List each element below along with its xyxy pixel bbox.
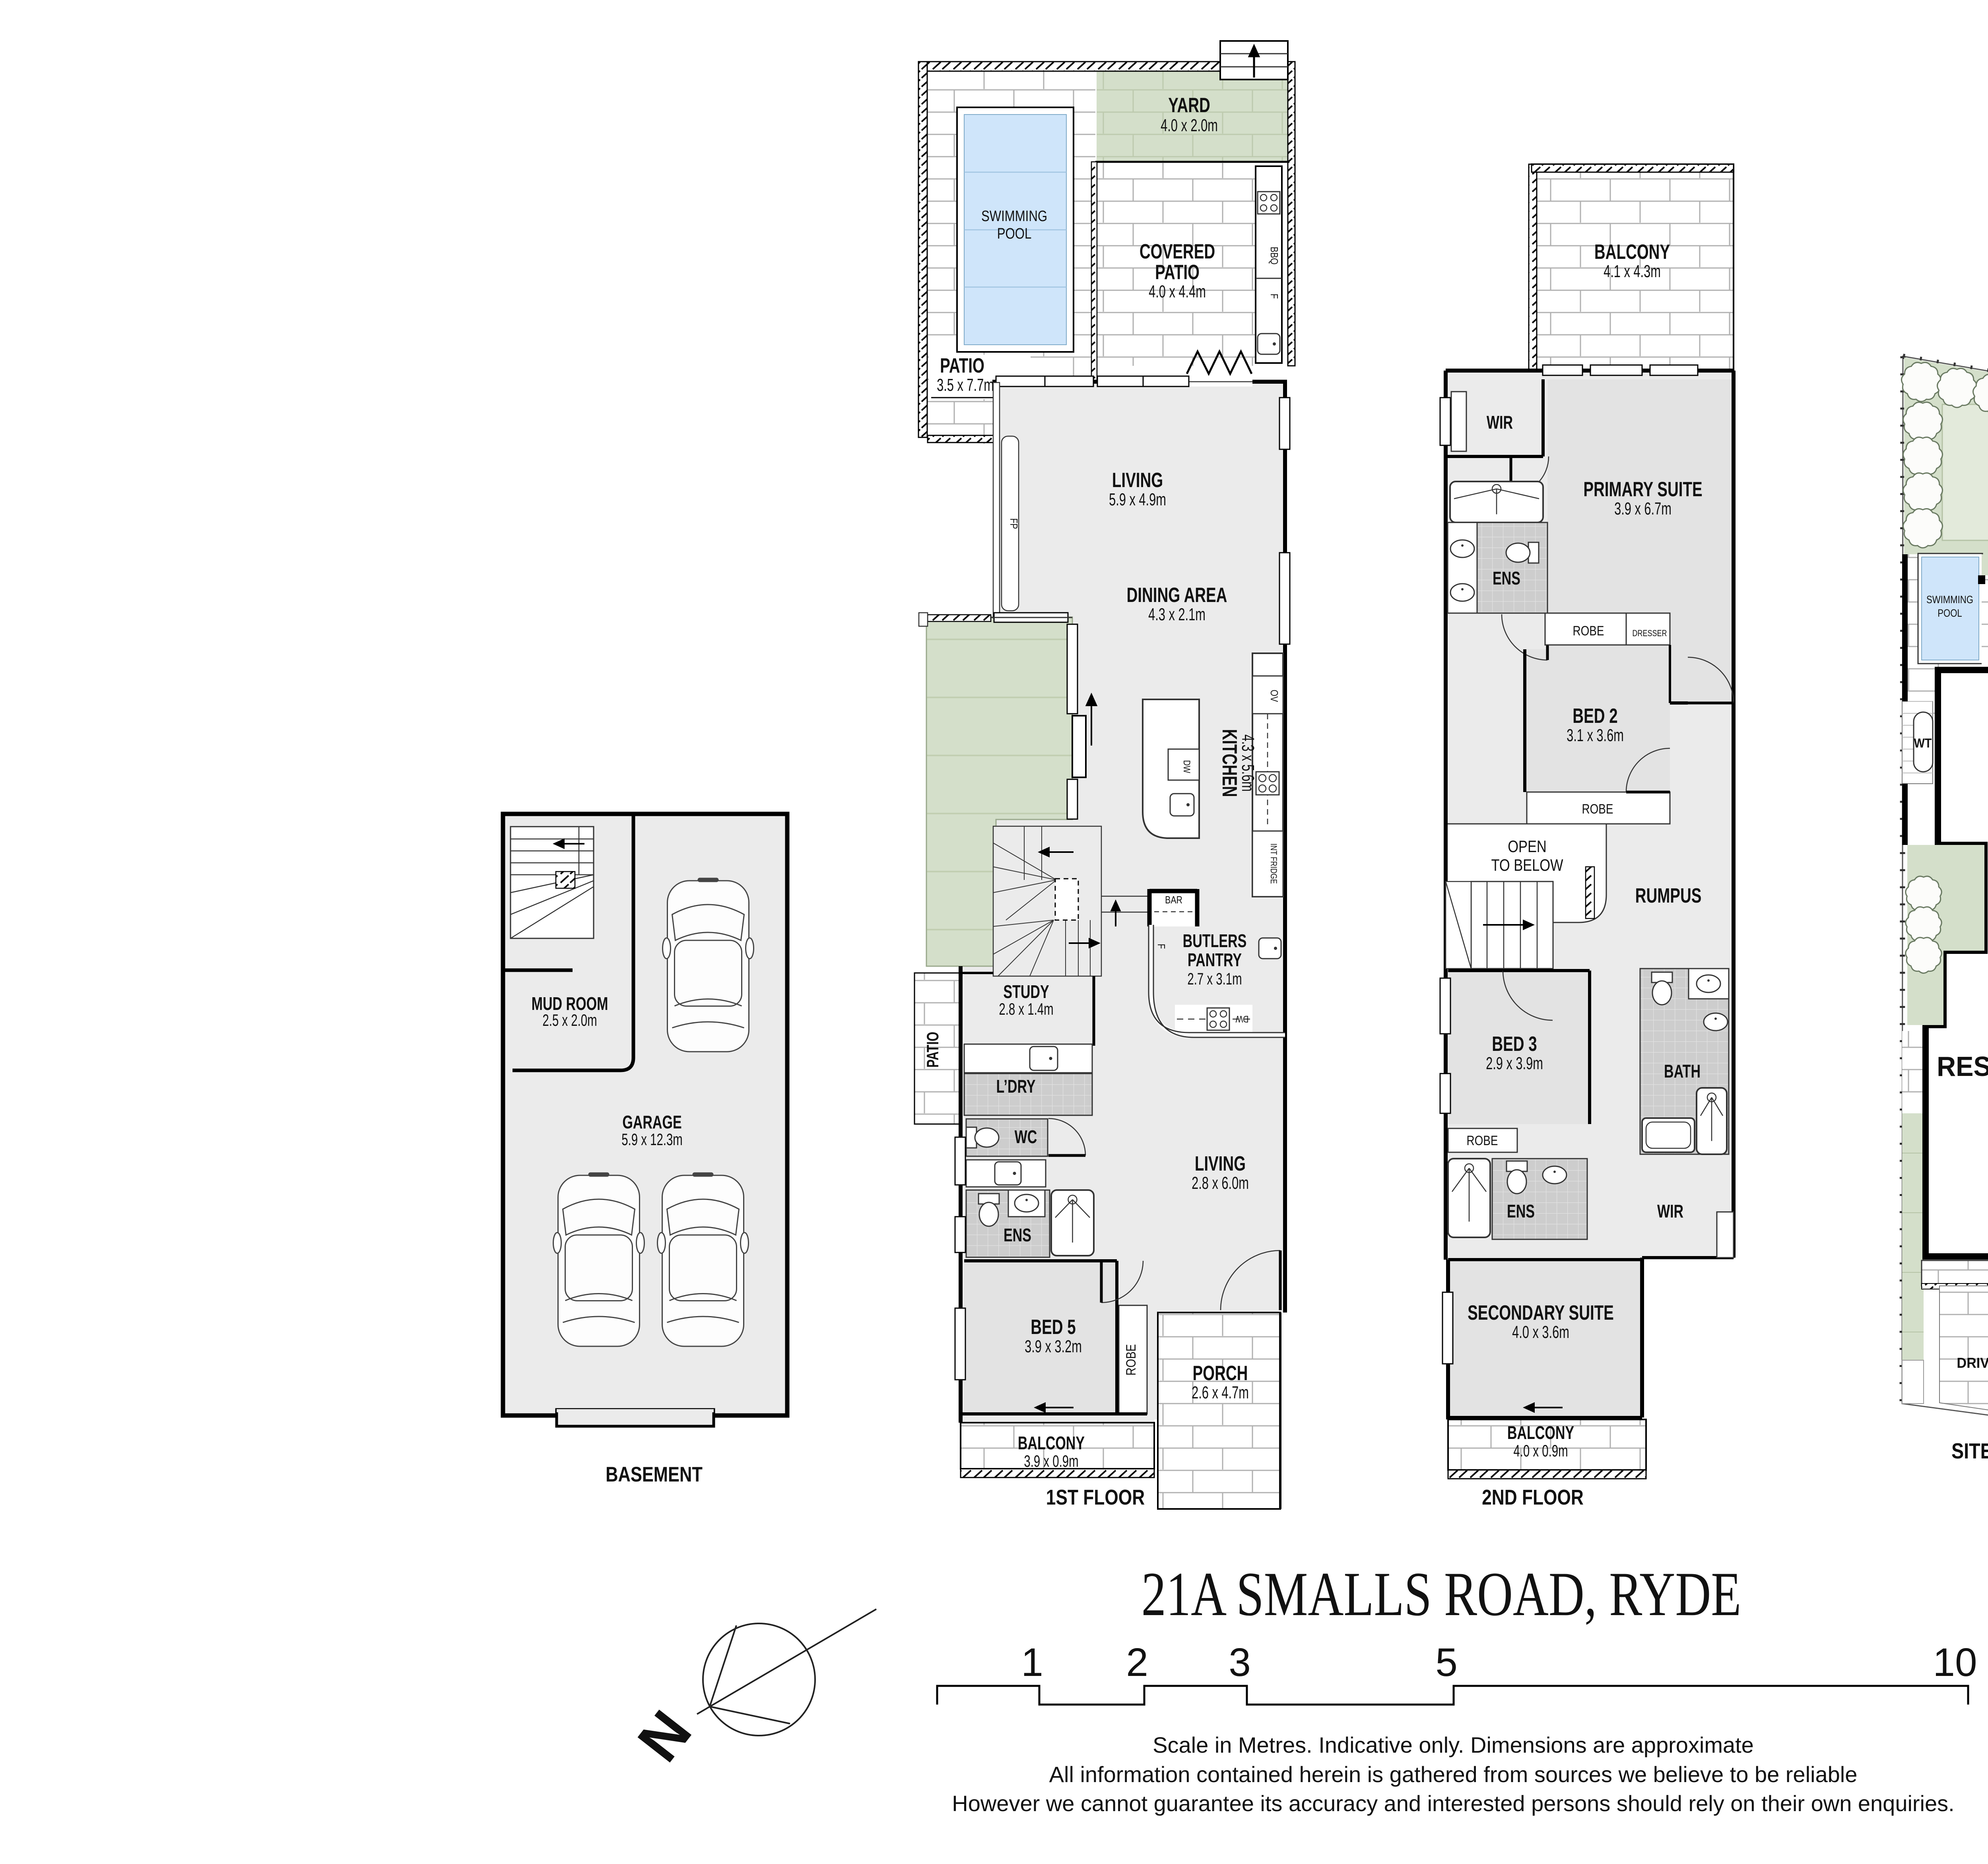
svg-text:GARAGE: GARAGE: [622, 1112, 681, 1132]
svg-text:BAR: BAR: [1165, 894, 1182, 906]
svg-text:2.5 x 2.0m: 2.5 x 2.0m: [542, 1011, 597, 1030]
svg-text:STUDY: STUDY: [1003, 981, 1049, 1002]
svg-text:2ND FLOOR: 2ND FLOOR: [1482, 1485, 1584, 1509]
svg-text:BED 5: BED 5: [1031, 1315, 1076, 1338]
svg-text:1ST FLOOR: 1ST FLOOR: [1046, 1485, 1145, 1509]
svg-text:3.9 x 0.9m: 3.9 x 0.9m: [1024, 1452, 1078, 1471]
svg-text:ROBE: ROBE: [1466, 1133, 1498, 1148]
svg-text:OV: OV: [1268, 690, 1280, 702]
svg-text:WC: WC: [1015, 1126, 1037, 1147]
svg-text:5: 5: [1435, 1640, 1458, 1685]
svg-text:However we cannot guarantee it: However we cannot guarantee its accuracy…: [952, 1791, 1954, 1816]
svg-text:SWIMMING: SWIMMING: [1926, 594, 1973, 606]
svg-text:4.0 x 0.9m: 4.0 x 0.9m: [1513, 1441, 1568, 1460]
svg-text:RUMPUS: RUMPUS: [1635, 884, 1702, 907]
svg-text:All information contained here: All information contained herein is gath…: [1049, 1762, 1858, 1787]
svg-text:WIR: WIR: [1487, 412, 1513, 433]
svg-text:4.0 x 2.0m: 4.0 x 2.0m: [1161, 116, 1218, 136]
svg-text:3.9 x 6.7m: 3.9 x 6.7m: [1614, 499, 1672, 519]
svg-text:BED 2: BED 2: [1573, 704, 1617, 727]
svg-text:3: 3: [1229, 1640, 1251, 1685]
svg-text:ROBE: ROBE: [1582, 801, 1613, 816]
svg-text:Scale in Metres. Indicative on: Scale in Metres. Indicative only. Dimens…: [1153, 1732, 1754, 1757]
svg-text:TO BELOW: TO BELOW: [1491, 856, 1563, 875]
svg-text:FP: FP: [1008, 518, 1019, 529]
svg-text:SITE PLAN: SITE PLAN: [1951, 1439, 1988, 1463]
svg-text:POOL: POOL: [1938, 608, 1962, 619]
svg-text:WT: WT: [1914, 736, 1932, 751]
svg-text:ROBE: ROBE: [1573, 623, 1604, 638]
svg-text:21A SMALLS ROAD, RYDE: 21A SMALLS ROAD, RYDE: [1142, 1559, 1741, 1629]
svg-text:10: 10: [1933, 1640, 1977, 1685]
svg-text:DRIVEWAY: DRIVEWAY: [1957, 1355, 1988, 1371]
svg-text:SWIMMING: SWIMMING: [981, 208, 1047, 225]
svg-text:ENS: ENS: [1493, 568, 1520, 588]
svg-text:PORCH: PORCH: [1192, 1361, 1248, 1384]
svg-text:F: F: [1268, 294, 1280, 299]
svg-text:RESIDENCE: RESIDENCE: [1937, 1051, 1988, 1082]
svg-text:N: N: [625, 1699, 704, 1774]
svg-text:WIR: WIR: [1657, 1201, 1683, 1221]
svg-text:INT FRIDGE: INT FRIDGE: [1269, 843, 1278, 884]
svg-text:4.0 x 4.4m: 4.0 x 4.4m: [1149, 282, 1206, 302]
svg-text:PATIO: PATIO: [923, 1032, 942, 1068]
svg-text:5.9 x 12.3m: 5.9 x 12.3m: [621, 1130, 683, 1149]
svg-text:5.9 x 4.9m: 5.9 x 4.9m: [1109, 490, 1166, 510]
svg-text:ROBE: ROBE: [1123, 1344, 1138, 1375]
svg-text:3.1 x 3.6m: 3.1 x 3.6m: [1567, 726, 1624, 746]
svg-text:PATIO: PATIO: [1155, 260, 1200, 283]
svg-text:4.3 x 5.6m: 4.3 x 5.6m: [1238, 734, 1258, 792]
svg-text:KITCHEN: KITCHEN: [1218, 729, 1241, 797]
svg-text:4.0 x 3.6m: 4.0 x 3.6m: [1512, 1323, 1569, 1342]
svg-text:2.6 x 4.7m: 2.6 x 4.7m: [1192, 1383, 1249, 1403]
svg-text:F: F: [1155, 944, 1167, 949]
svg-text:YARD: YARD: [1168, 93, 1210, 116]
svg-text:2.8 x 1.4m: 2.8 x 1.4m: [999, 1000, 1053, 1019]
svg-text:4.3 x 2.1m: 4.3 x 2.1m: [1148, 605, 1206, 625]
svg-text:ENS: ENS: [1507, 1201, 1535, 1221]
svg-text:L’DRY: L’DRY: [996, 1076, 1036, 1097]
svg-text:1: 1: [1021, 1640, 1043, 1685]
svg-text:DW: DW: [1182, 760, 1192, 773]
svg-text:ENS: ENS: [1004, 1225, 1031, 1245]
svg-text:BATH: BATH: [1664, 1061, 1701, 1082]
svg-text:LIVING: LIVING: [1112, 468, 1163, 491]
svg-text:DINING AREA: DINING AREA: [1127, 583, 1227, 606]
svg-text:DRESSER: DRESSER: [1632, 629, 1667, 638]
svg-text:BASEMENT: BASEMENT: [606, 1463, 703, 1486]
svg-text:2.7 x 3.1m: 2.7 x 3.1m: [1187, 969, 1242, 988]
svg-text:3.9 x 3.2m: 3.9 x 3.2m: [1025, 1337, 1082, 1357]
svg-text:BED 3: BED 3: [1492, 1032, 1537, 1055]
svg-text:BALCONY: BALCONY: [1018, 1433, 1085, 1453]
svg-text:DW: DW: [1235, 1014, 1248, 1025]
svg-text:BALCONY: BALCONY: [1507, 1422, 1574, 1443]
svg-text:BBQ: BBQ: [1268, 247, 1280, 265]
svg-text:PATIO: PATIO: [940, 354, 984, 377]
svg-text:SECONDARY SUITE: SECONDARY SUITE: [1468, 1301, 1614, 1324]
svg-text:3.5 x 7.7m: 3.5 x 7.7m: [937, 376, 994, 395]
svg-text:2.9 x 3.9m: 2.9 x 3.9m: [1486, 1054, 1543, 1074]
svg-text:BUTLERS: BUTLERS: [1183, 930, 1247, 951]
svg-text:LIVING: LIVING: [1195, 1152, 1246, 1175]
svg-text:PRIMARY SUITE: PRIMARY SUITE: [1583, 478, 1702, 501]
svg-text:2.8 x 6.0m: 2.8 x 6.0m: [1192, 1174, 1249, 1193]
svg-text:4.1 x 4.3m: 4.1 x 4.3m: [1604, 262, 1661, 282]
svg-text:POOL: POOL: [997, 225, 1032, 242]
svg-text:2: 2: [1126, 1640, 1148, 1685]
svg-text:COVERED: COVERED: [1140, 240, 1215, 263]
svg-text:PANTRY: PANTRY: [1188, 949, 1242, 970]
svg-text:BALCONY: BALCONY: [1594, 240, 1670, 263]
svg-text:OPEN: OPEN: [1508, 837, 1547, 856]
